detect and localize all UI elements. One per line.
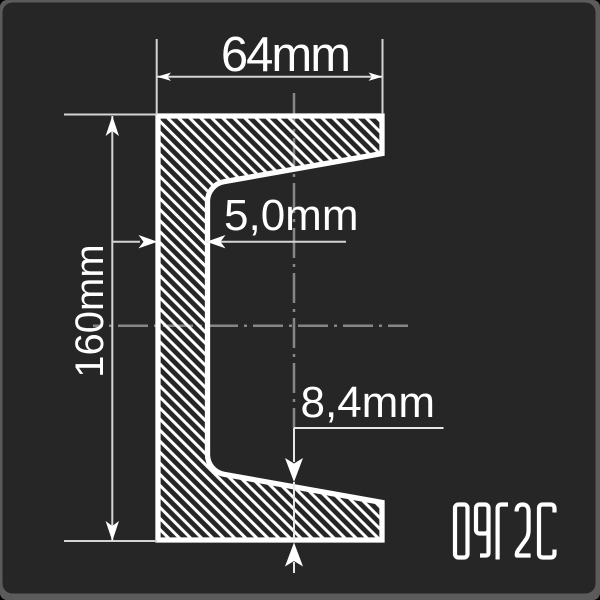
svg-text:64mm: 64mm	[221, 28, 349, 82]
svg-text:5,0mm: 5,0mm	[224, 191, 358, 240]
svg-text:8,4mm: 8,4mm	[301, 378, 435, 427]
svg-text:160mm: 160mm	[68, 244, 112, 377]
